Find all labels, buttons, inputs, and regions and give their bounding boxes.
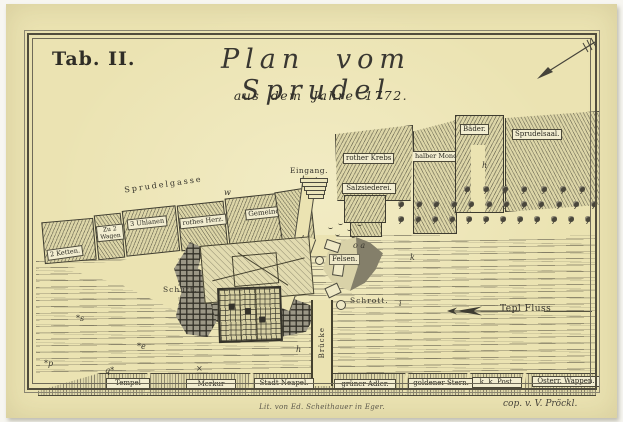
stairs-step	[308, 194, 324, 199]
debris-left-label: Schutt.	[163, 285, 197, 294]
tree-icon	[560, 186, 567, 195]
paper-sheet: 2 Ketten. Zu 2 Wagen 3 Uhlanen rothes He…	[6, 4, 617, 418]
grass-tuft	[328, 225, 333, 229]
rocks-label: Felsen.	[329, 254, 360, 265]
point-marker-p: *p	[44, 359, 53, 368]
grass-tuft	[347, 227, 352, 231]
building-sprudelsaal: Sprudelsaal.	[505, 111, 600, 212]
window-mark	[229, 304, 235, 310]
building-label: 3 Uhlanen	[127, 215, 168, 230]
river-flow-arrow-icon	[444, 303, 522, 319]
building-label: Sprudelsaal.	[512, 129, 562, 140]
building-3-uhlanen: 3 Uhlanen	[122, 205, 181, 256]
north-arrow-icon	[529, 36, 601, 82]
tree-icon	[502, 186, 509, 195]
point-marker-x: ×	[196, 364, 203, 373]
tree-icon	[556, 201, 563, 210]
room-divider	[255, 289, 258, 340]
tree-icon	[551, 216, 558, 225]
plate-number: Tab. II.	[52, 48, 136, 70]
point-marker-h: h	[296, 345, 301, 354]
point-marker-i: i	[399, 299, 402, 308]
tree-icon	[415, 216, 422, 225]
tree-icon	[521, 186, 528, 195]
basin-circle	[315, 256, 324, 265]
tree-icon	[486, 201, 493, 210]
house-label-goldener-stern: goldener Stern.	[408, 378, 474, 389]
tree-icon	[416, 201, 423, 210]
tree-icon	[579, 186, 586, 195]
point-marker-k: k	[410, 253, 415, 262]
tree-row	[398, 201, 598, 210]
tree-icon	[464, 186, 471, 195]
tree-icon	[466, 216, 473, 225]
tree-icon	[483, 186, 490, 195]
scanned-map-page: 2 Ketten. Zu 2 Wagen 3 Uhlanen rothes He…	[0, 0, 623, 422]
tree-icon	[398, 201, 405, 210]
salzsiederei-block	[344, 195, 386, 223]
tree-icon	[468, 201, 475, 210]
basin-circle	[336, 300, 346, 310]
house-label-gruener-adler: grüner Adler.	[334, 379, 396, 390]
house-label-kk-post: k. k. Post.	[472, 377, 522, 388]
building-label: rother Krebs	[343, 153, 394, 164]
point-marker-q: q*	[105, 366, 114, 375]
tree-icon	[568, 216, 575, 225]
point-marker-s: *s	[76, 314, 84, 323]
window-mark	[245, 308, 251, 314]
point-marker-h: h	[482, 161, 487, 170]
house-label-tempel: Tempel	[106, 378, 150, 389]
tree-row	[398, 216, 592, 225]
grass-tuft	[338, 221, 343, 225]
building-label: Bäder.	[460, 124, 489, 135]
tree-icon	[432, 216, 439, 225]
tree-icon	[573, 201, 580, 210]
lithographer-credit: Lit. von Ed. Scheithauer in Eger.	[252, 403, 392, 411]
tree-icon	[449, 216, 456, 225]
tree-icon	[591, 201, 598, 210]
grass-tuft	[357, 222, 362, 226]
courtyard-inner-plot	[232, 253, 280, 288]
house-label-oesterr-wappen: Österr. Wappen.	[532, 376, 600, 387]
entrance-label: Eingang.	[290, 166, 328, 175]
window-mark	[259, 316, 265, 322]
bridge-label: Brücke	[318, 327, 326, 358]
building-label: rothes Herz.	[179, 213, 227, 229]
tree-icon	[451, 201, 458, 210]
tree-icon	[398, 216, 405, 225]
building-zu-2-wagen: Zu 2 Wagen	[94, 213, 126, 261]
tree-icon	[534, 216, 541, 225]
map-subtitle: aus dem Jahre 1772.	[211, 88, 431, 103]
tree-icon	[541, 186, 548, 195]
tree-icon	[433, 201, 440, 210]
tree-icon	[538, 201, 545, 210]
sprudel-spring-house	[217, 286, 283, 343]
building-2-ketten: 2 Ketten.	[41, 218, 96, 264]
point-marker-e: *e	[137, 342, 146, 351]
tree-icon	[521, 201, 528, 210]
debris-right-label: Schrott.	[350, 296, 389, 305]
building-label: Zu 2 Wagen	[96, 224, 125, 243]
house-label-merkur: Merkur	[186, 379, 236, 390]
tree-icon	[483, 216, 490, 225]
tree-icon	[585, 216, 592, 225]
street-label-sprudelgasse: Sprudelgasse	[124, 175, 203, 195]
building-label: 2 Ketten.	[46, 245, 83, 261]
grass-tuft	[335, 232, 340, 236]
building-label-salzsiederei: Salzsiederei.	[342, 183, 396, 194]
house-label-stadt-neapel: Stadt Neapel.	[254, 378, 314, 389]
room-divider	[239, 289, 242, 340]
tree-icon	[517, 216, 524, 225]
tree-icon	[500, 216, 507, 225]
cartographer-credit: cop. v. V. Pröckl.	[503, 399, 577, 409]
bridge: Brücke	[311, 300, 333, 386]
building-baeder: Bäder.	[455, 115, 504, 213]
building-label: halber Mond	[412, 151, 460, 162]
tree-icon	[503, 201, 510, 210]
point-marker-w: w	[224, 188, 231, 197]
tree-row	[464, 186, 586, 195]
point-marker-oa: o a	[353, 241, 365, 250]
